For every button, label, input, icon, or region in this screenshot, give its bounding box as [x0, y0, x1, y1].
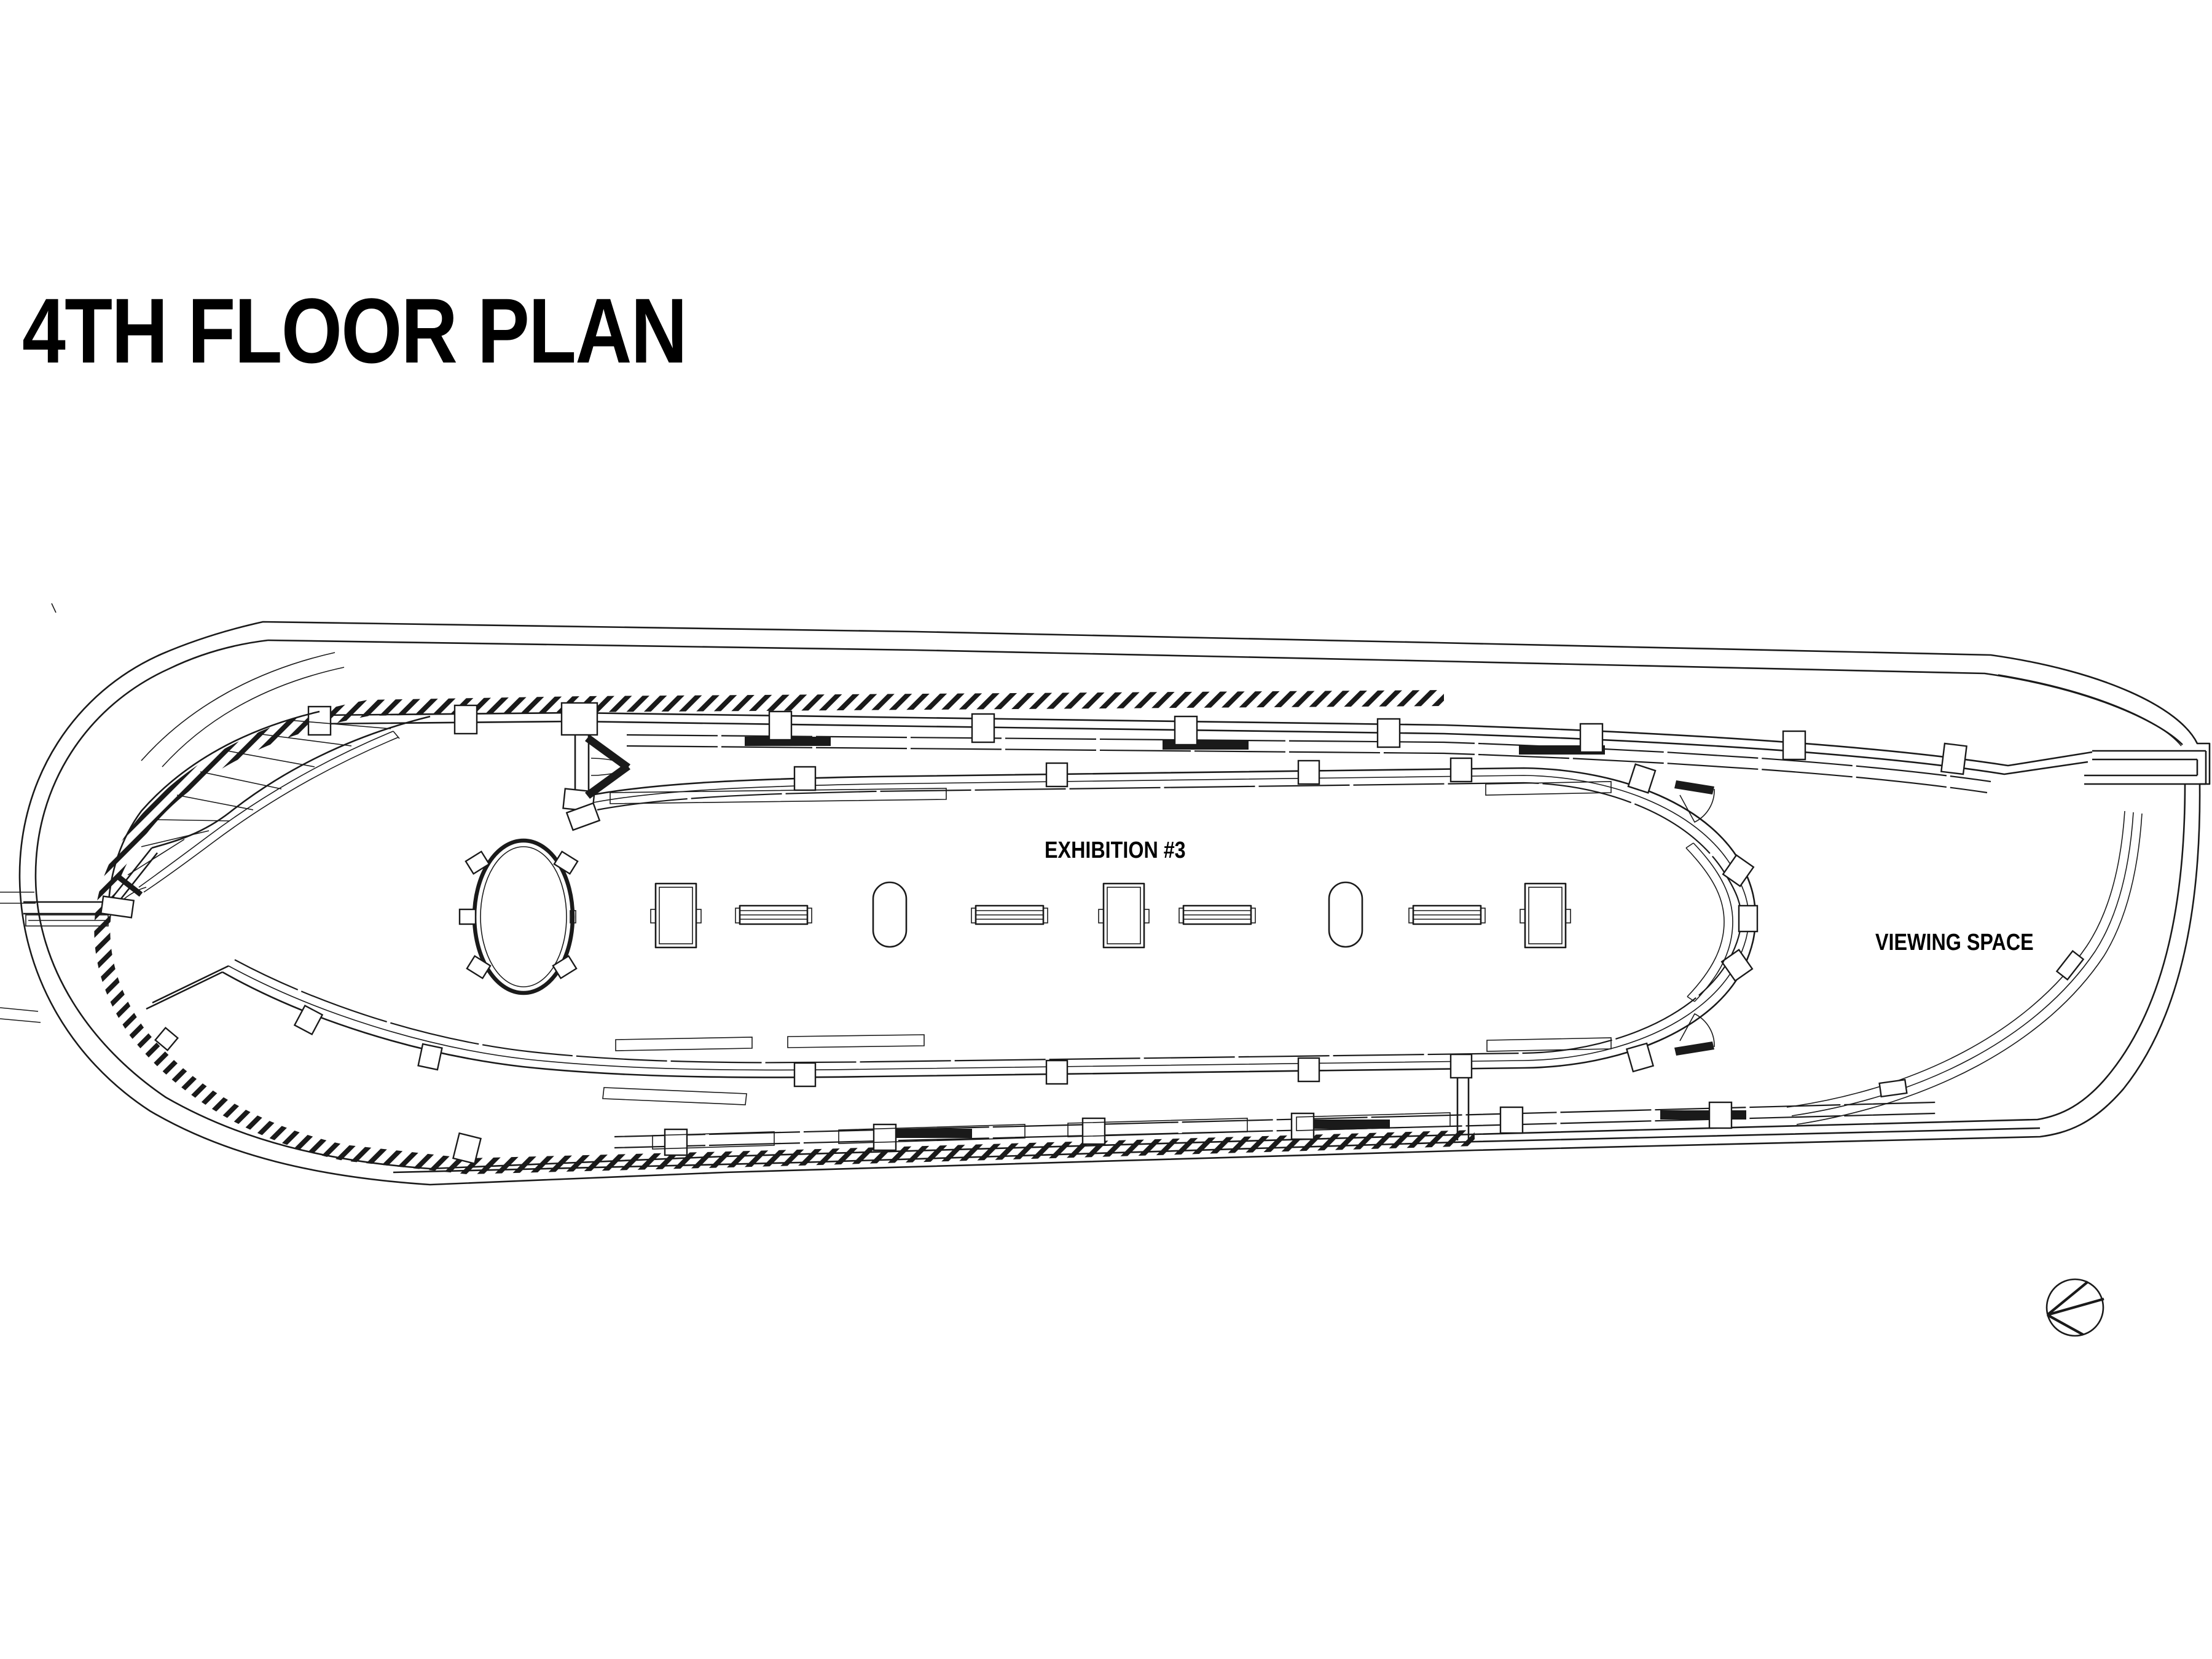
display-case-dark — [1304, 1120, 1390, 1129]
wall-pilaster — [665, 1129, 687, 1155]
wall-pilaster — [769, 712, 791, 740]
oval-door-top-right — [1674, 780, 1714, 822]
exhibit-furniture — [460, 841, 1571, 993]
oval-pilaster — [1628, 764, 1655, 793]
wall-pilaster — [1500, 1107, 1523, 1133]
large-oval-vitrine — [460, 841, 578, 993]
vitrine-tab — [554, 852, 578, 874]
bench — [971, 906, 1048, 924]
exhibition-label: EXHIBITION #3 — [1045, 837, 1186, 863]
glazing-transom — [2057, 951, 2083, 980]
oval-pilaster — [1626, 1043, 1653, 1072]
wall-pilaster — [1378, 719, 1400, 747]
curved-stair — [23, 712, 430, 926]
inner-boundary-bottom — [36, 640, 2185, 1169]
viewing-partition — [1457, 1069, 1469, 1140]
wall-pilaster — [455, 705, 477, 734]
page-title: 4TH FLOOR PLAN — [22, 280, 686, 382]
oval-pilaster — [794, 1063, 815, 1086]
oval-sweep-diagonal — [146, 966, 229, 1009]
display-case-dark — [1660, 1110, 1746, 1120]
left-edge-jogs — [0, 892, 41, 1022]
oval-pilaster — [1739, 906, 1757, 931]
bench — [1179, 906, 1255, 924]
bench — [735, 906, 812, 924]
wall-pilaster — [1783, 731, 1805, 759]
double-door — [585, 735, 630, 799]
wall-pilaster — [308, 707, 331, 735]
wall-pilaster — [1580, 724, 1602, 752]
wall-corner-block — [101, 896, 133, 918]
stray-tick — [52, 603, 56, 613]
pill-pedestal — [873, 882, 906, 947]
oval-pilaster — [418, 1044, 442, 1070]
oval-pilaster — [294, 1006, 322, 1035]
oval-pilaster — [1451, 1054, 1472, 1078]
room-labels: EXHIBITION #3 VIEWING SPACE — [1045, 837, 2034, 955]
wall-pilaster — [972, 714, 994, 742]
display-case-rect — [1099, 884, 1149, 947]
bench — [1409, 906, 1485, 924]
right-top-inner-arc — [1998, 675, 2181, 746]
oval-pilaster — [1046, 763, 1067, 786]
oval-pilaster — [1451, 758, 1472, 782]
wall-pilaster — [1175, 716, 1197, 745]
right-notch — [2084, 751, 2206, 784]
sheet-title: 4TH FLOOR PLAN — [22, 280, 686, 382]
pill-pedestal — [1329, 882, 1362, 947]
oval-pilaster — [1046, 1061, 1067, 1084]
panel — [603, 1088, 747, 1105]
glazing-transom — [1880, 1080, 1907, 1097]
vitrine-tab — [467, 956, 490, 978]
oval-pilaster — [1298, 761, 1319, 784]
panel — [616, 1037, 752, 1051]
vitrine-tab — [460, 909, 476, 924]
curtain-wall-hatch — [102, 698, 1475, 1166]
oval-pilaster — [794, 767, 815, 790]
wall-pilaster — [1941, 743, 1966, 774]
exhibition-oval — [146, 758, 1757, 1140]
bottom-right-glazing — [1787, 811, 2142, 1124]
display-case-rect — [1520, 884, 1571, 947]
viewing-space-label: VIEWING SPACE — [1875, 930, 2034, 955]
vestibule-pilaster — [562, 703, 597, 735]
floor-plan-canvas: 4TH FLOOR PLAN — [0, 0, 2212, 1659]
drawing-sheet: 4TH FLOOR PLAN — [0, 0, 2212, 1659]
oval-pilaster — [1298, 1058, 1319, 1081]
wall-pilaster — [1709, 1102, 1732, 1128]
display-case-dark — [886, 1129, 972, 1138]
display-case-rect — [651, 884, 701, 947]
north-arrow-icon — [2047, 1279, 2104, 1336]
panel — [788, 1035, 924, 1048]
curved-display-panel — [1686, 843, 1733, 1002]
